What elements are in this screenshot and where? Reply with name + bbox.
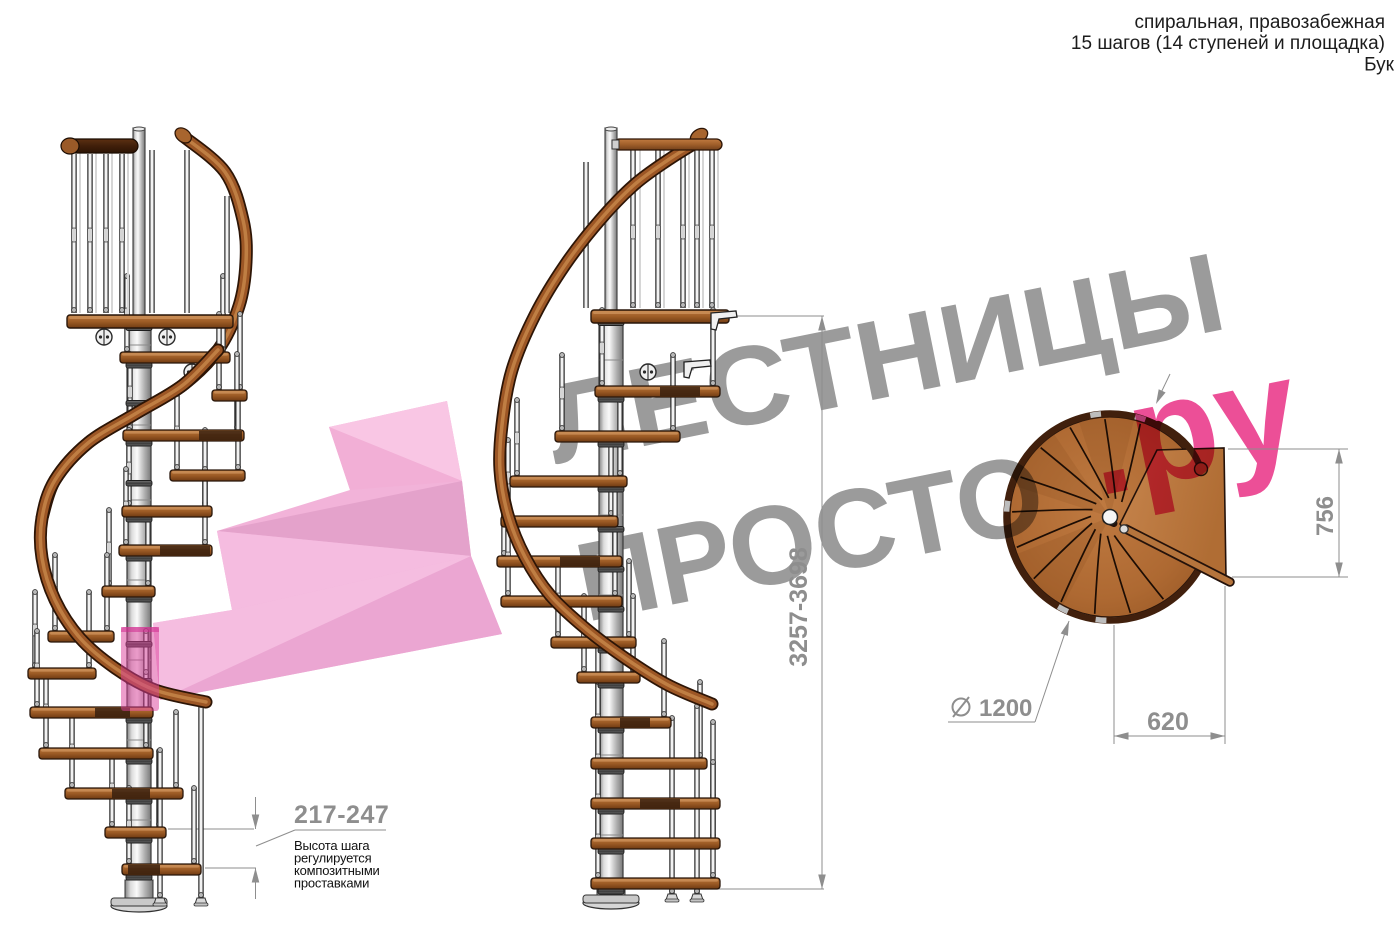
svg-text:217-247: 217-247: [294, 801, 389, 829]
svg-text:3257-3698: 3257-3698: [785, 547, 813, 667]
svg-text:620: 620: [1147, 708, 1189, 736]
svg-text:756: 756: [1312, 496, 1339, 536]
svg-text:Высота шагарегулируетсякомпози: Высота шагарегулируетсякомпозитнымипрост…: [294, 838, 380, 891]
svg-text:1200: 1200: [979, 695, 1032, 722]
